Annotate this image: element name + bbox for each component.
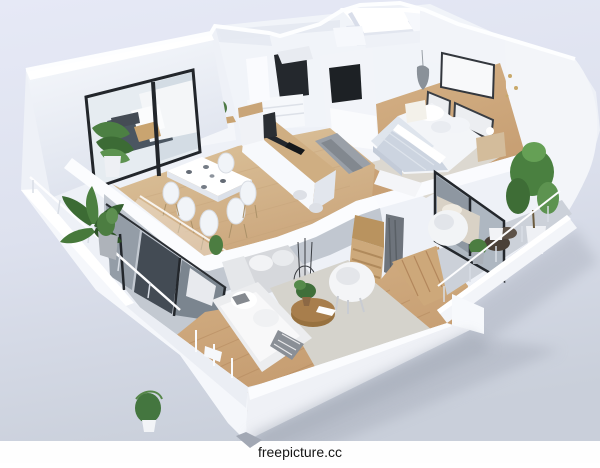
svg-text:freepicture.cc: freepicture.cc	[258, 444, 342, 460]
